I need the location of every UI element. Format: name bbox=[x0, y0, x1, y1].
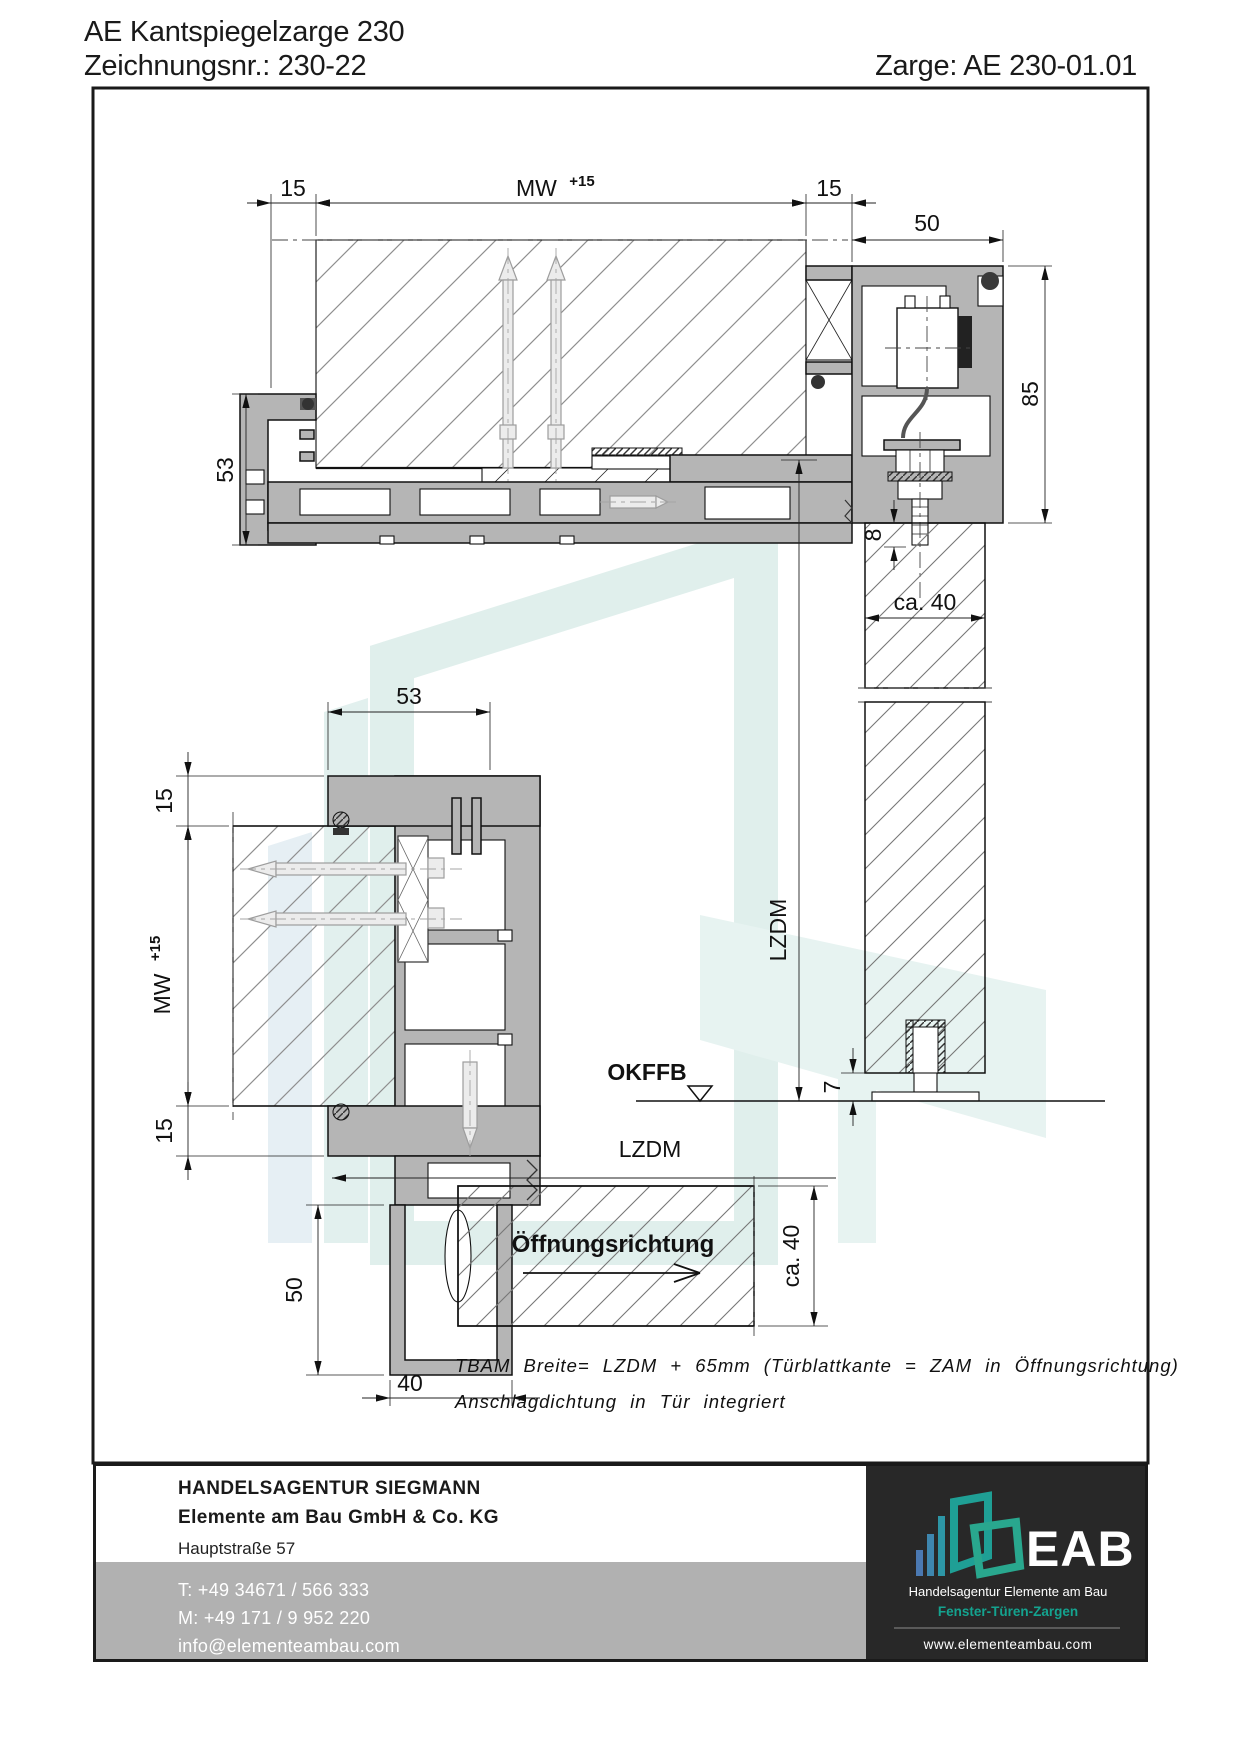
dim-50-side: 50 bbox=[281, 1277, 307, 1303]
eab-logo: EAB Handelsagentur Elemente am Bau Fenst… bbox=[866, 1466, 1145, 1659]
label-lzdm-vertical: LZDM bbox=[765, 899, 791, 962]
company-name-1: HANDELSAGENTUR SIEGMANN bbox=[178, 1478, 481, 1500]
label-lzdm-horizontal: LZDM bbox=[619, 1136, 682, 1162]
dim-mw-side: MW +15 bbox=[147, 936, 175, 1015]
dim-53-side: 53 bbox=[396, 683, 422, 709]
dimension-50-top: 50 bbox=[852, 210, 1003, 262]
note-line-1: TBAM Breite= LZDM + 65mm (Türblattkante … bbox=[455, 1355, 1179, 1376]
dim-15-side-bottom: 15 bbox=[151, 1118, 177, 1144]
dim-40: 40 bbox=[397, 1370, 423, 1396]
eab-website: www.elementeambau.com bbox=[923, 1637, 1093, 1652]
contact-mobile: M: +49 171 / 9 952 220 bbox=[178, 1608, 370, 1629]
dim-ca40-side: ca. 40 bbox=[778, 1225, 804, 1288]
label-opening-direction: Öffnungsrichtung bbox=[512, 1231, 715, 1258]
note-line-2: Anschlagdichtung in Tür integriert bbox=[454, 1391, 786, 1412]
company-street: Hauptstraße 57 bbox=[178, 1539, 295, 1559]
dim-15-side-top: 15 bbox=[151, 788, 177, 814]
title-block: HANDELSAGENTUR SIEGMANN Elemente am Bau … bbox=[93, 1463, 1148, 1662]
dim-50: 50 bbox=[914, 210, 940, 236]
dim-ca40: ca. 40 bbox=[894, 589, 957, 615]
dim-8: 8 bbox=[860, 529, 886, 542]
wall-hatch-side bbox=[233, 812, 395, 1120]
eab-tagline: Fenster-Türen-Zargen bbox=[938, 1604, 1078, 1619]
dim-7: 7 bbox=[819, 1081, 845, 1094]
insulation-block bbox=[806, 266, 852, 389]
dimension-85: 85 bbox=[1008, 266, 1052, 523]
dim-85: 85 bbox=[1017, 381, 1043, 407]
contact-bar: T: +49 34671 / 566 333 M: +49 171 / 9 95… bbox=[96, 1562, 872, 1659]
dim-mw: MW +15 bbox=[516, 173, 595, 201]
dim-53: 53 bbox=[212, 457, 238, 483]
contact-email: info@elementeambau.com bbox=[178, 1636, 400, 1657]
label-okffb: OKFFB bbox=[607, 1059, 686, 1085]
drawing-sheet: AE Kantspiegelzarge 230 Zeichnungsnr.: 2… bbox=[0, 0, 1240, 1754]
dim-15-left: 15 bbox=[280, 175, 306, 201]
contact-phone: T: +49 34671 / 566 333 bbox=[178, 1580, 369, 1601]
dim-15-right: 15 bbox=[816, 175, 842, 201]
door-leaf-side-view: Öffnungsrichtung bbox=[445, 1176, 754, 1336]
eab-acronym: EAB bbox=[1026, 1521, 1135, 1577]
eab-subtitle: Handelsagentur Elemente am Bau bbox=[909, 1584, 1108, 1599]
eab-logo-buildings bbox=[916, 1496, 1020, 1576]
eab-logo-panel: EAB Handelsagentur Elemente am Bau Fenst… bbox=[866, 1466, 1145, 1659]
company-name-2: Elemente am Bau GmbH & Co. KG bbox=[178, 1507, 499, 1529]
